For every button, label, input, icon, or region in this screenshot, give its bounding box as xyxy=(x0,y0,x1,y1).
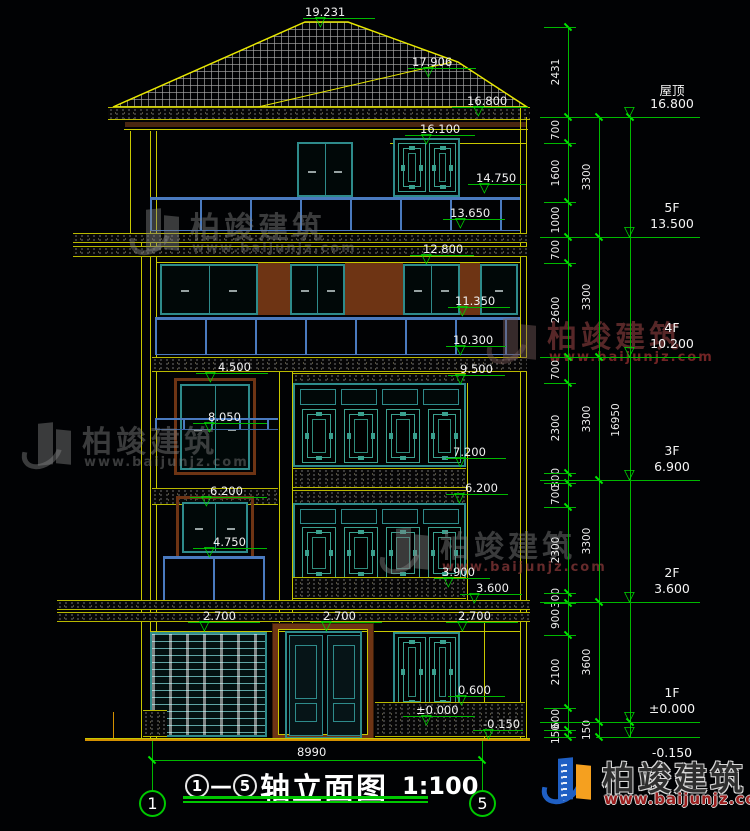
elevation-triangle-icon: ▽ xyxy=(421,253,432,265)
floor-name: 4F xyxy=(642,320,702,335)
dim-stub xyxy=(544,730,576,731)
dim-stub xyxy=(544,473,576,474)
dim-label: 900 xyxy=(550,609,562,629)
elevation-triangle-icon: ▽ xyxy=(423,66,434,78)
elevation-triangle-icon: ▽ xyxy=(443,576,454,588)
floor-name: 1F xyxy=(642,685,702,700)
floor-elevation: 10.200 xyxy=(642,336,702,351)
elevation-line xyxy=(473,730,523,731)
dim-stub xyxy=(544,507,576,508)
elevation-line xyxy=(303,18,375,19)
floor-level-line xyxy=(540,602,700,603)
elevation-triangle-icon: ▽ xyxy=(469,592,480,604)
floor-level-line xyxy=(540,237,700,238)
elevation-triangle-icon: ▽ xyxy=(455,373,466,385)
floor-level-line xyxy=(540,480,700,481)
dim-label: 2600 xyxy=(550,297,562,324)
dim-stub xyxy=(544,708,576,709)
elevation-triangle-icon: ▽ xyxy=(204,421,215,433)
elevation-triangle-icon: ▽ xyxy=(455,344,466,356)
dim-stub xyxy=(544,383,576,384)
dim-label: 2300 xyxy=(550,537,562,564)
dim-label: 2300 xyxy=(550,415,562,442)
elevation-line xyxy=(410,255,474,256)
dim-label: 3300 xyxy=(581,164,593,191)
elevation-triangle-icon: ▽ xyxy=(321,620,332,632)
elevation-triangle-icon: ▽ xyxy=(457,305,468,317)
dim-label: 1000 xyxy=(550,206,562,233)
dim-label: 700 xyxy=(550,240,562,260)
floor-elevation: 6.900 xyxy=(642,459,702,474)
floor-elevation: 16.800 xyxy=(642,96,702,111)
elevation-triangle-icon: ▽ xyxy=(454,492,465,504)
elevation-text: 6.200 xyxy=(465,481,498,495)
dim-chain-line xyxy=(630,117,631,737)
dim-label: 300 xyxy=(550,588,562,608)
elevation-triangle-icon: ▽ xyxy=(624,226,635,238)
dim-label: 3600 xyxy=(581,649,593,676)
elevation-triangle-icon: ▽ xyxy=(473,105,484,117)
elevation-drawing-canvas: 8990 1 5 1 — 5 轴立面图 1:100 柏竣建筑 www.baiju… xyxy=(0,0,750,831)
dim-label: 700 xyxy=(550,120,562,140)
dim-stub xyxy=(544,593,576,594)
floor-elevation: -0.150 xyxy=(642,745,702,760)
elevation-line xyxy=(405,135,475,136)
elevation-triangle-icon: ▽ xyxy=(483,728,494,740)
dim-label: 3300 xyxy=(581,284,593,311)
dim-label: 150 xyxy=(550,723,562,743)
dim-stub xyxy=(544,202,576,203)
elevation-triangle-icon: ▽ xyxy=(455,217,466,229)
elevation-triangle-icon: ▽ xyxy=(199,620,210,632)
dim-label: 2431 xyxy=(550,59,562,86)
elevation-triangle-icon: ▽ xyxy=(624,726,635,738)
floor-name: 2F xyxy=(642,565,702,580)
elevation-line xyxy=(443,219,505,220)
dim-label: 3300 xyxy=(581,528,593,555)
floor-level-line xyxy=(540,722,700,723)
floor-level-line xyxy=(540,357,700,358)
floor-level-line xyxy=(540,117,700,118)
floor-elevation: ±0.000 xyxy=(642,701,702,716)
elevation-triangle-icon: ▽ xyxy=(315,16,326,28)
floor-name: 5F xyxy=(642,200,702,215)
elevation-line xyxy=(452,107,528,108)
elevation-line xyxy=(403,716,475,717)
elevation-text: 4.500 xyxy=(218,360,251,374)
elevation-text: 4.750 xyxy=(213,535,246,549)
dimension-layer: 2431700160010007002600700230030070023003… xyxy=(0,0,750,831)
elevation-triangle-icon: ▽ xyxy=(624,711,635,723)
dim-stub xyxy=(544,737,576,738)
elevation-triangle-icon: ▽ xyxy=(479,182,490,194)
floor-name: 3F xyxy=(642,443,702,458)
dim-stub xyxy=(544,143,576,144)
elevation-text: 6.200 xyxy=(210,484,243,498)
floor-elevation: 13.500 xyxy=(642,216,702,231)
floor-elevation: 3.600 xyxy=(642,581,702,596)
elevation-triangle-icon: ▽ xyxy=(624,469,635,481)
elevation-triangle-icon: ▽ xyxy=(204,546,215,558)
elevation-line xyxy=(468,184,526,185)
floor-level-line xyxy=(596,737,700,738)
elevation-text: 3.600 xyxy=(476,581,509,595)
dim-label: 16950 xyxy=(610,403,622,436)
dim-label: 700 xyxy=(550,485,562,505)
elevation-triangle-icon: ▽ xyxy=(421,133,432,145)
elevation-triangle-icon: ▽ xyxy=(624,106,635,118)
dim-label: 2100 xyxy=(550,658,562,685)
dim-stub xyxy=(544,27,576,28)
dim-chain-line xyxy=(599,117,600,737)
elevation-triangle-icon: ▽ xyxy=(421,714,432,726)
elevation-triangle-icon: ▽ xyxy=(624,591,635,603)
elevation-line xyxy=(408,68,476,69)
dim-stub xyxy=(544,263,576,264)
dim-label: 1600 xyxy=(550,159,562,186)
dim-stub xyxy=(544,483,576,484)
dim-stub xyxy=(544,603,576,604)
dim-label: 700 xyxy=(550,360,562,380)
elevation-triangle-icon: ▽ xyxy=(201,495,212,507)
elevation-triangle-icon: ▽ xyxy=(457,620,468,632)
dim-label: 3300 xyxy=(581,405,593,432)
elevation-triangle-icon: ▽ xyxy=(205,371,216,383)
elevation-triangle-icon: ▽ xyxy=(455,456,466,468)
elevation-triangle-icon: ▽ xyxy=(624,346,635,358)
dim-stub xyxy=(544,635,576,636)
